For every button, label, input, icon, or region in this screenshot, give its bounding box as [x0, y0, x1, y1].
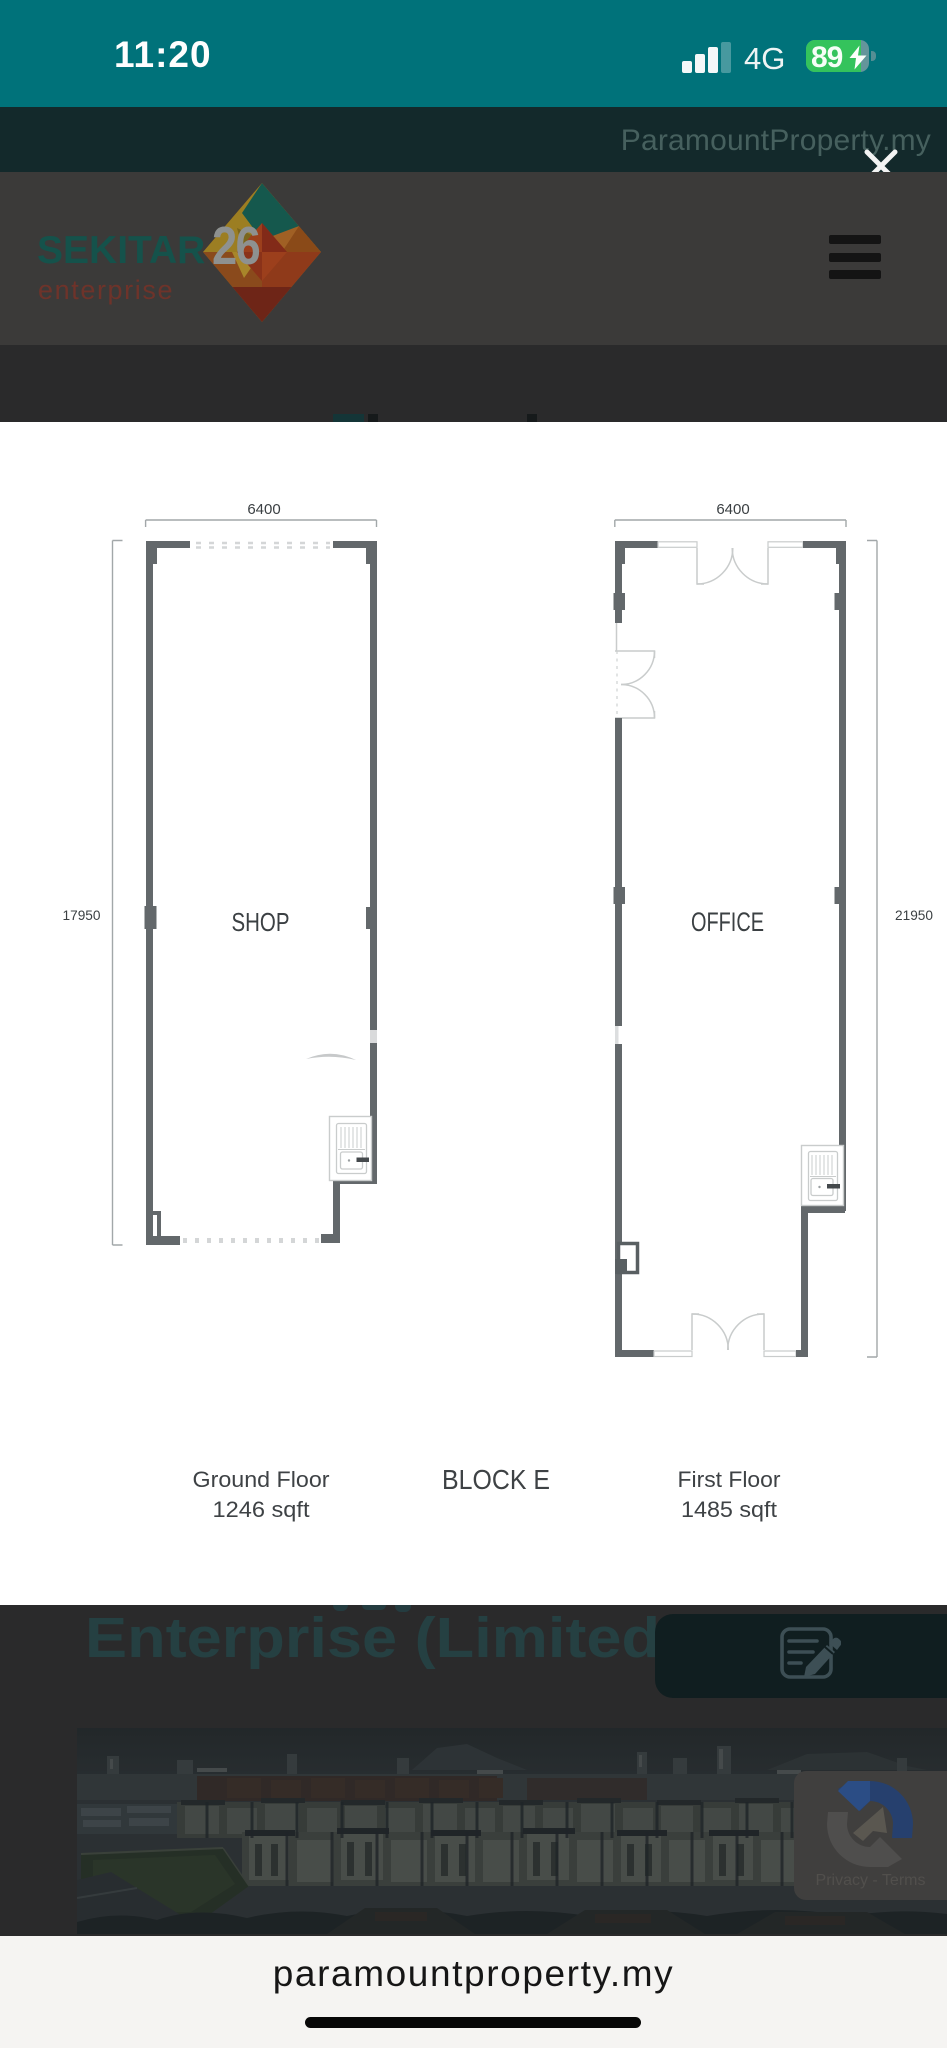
- svg-text:First Floor: First Floor: [678, 1467, 781, 1492]
- svg-text:Ground Floor: Ground Floor: [193, 1467, 330, 1492]
- svg-text:BLOCK E: BLOCK E: [442, 1464, 550, 1495]
- svg-text:17950: 17950: [63, 907, 101, 923]
- svg-text:6400: 6400: [247, 501, 280, 518]
- svg-text:21950: 21950: [895, 907, 933, 923]
- svg-text:6400: 6400: [716, 501, 749, 518]
- svg-text:OFFICE: OFFICE: [691, 907, 764, 937]
- svg-text:SHOP: SHOP: [232, 907, 290, 937]
- svg-text:1246 sqft: 1246 sqft: [213, 1497, 310, 1522]
- svg-text:1485 sqft: 1485 sqft: [681, 1497, 777, 1522]
